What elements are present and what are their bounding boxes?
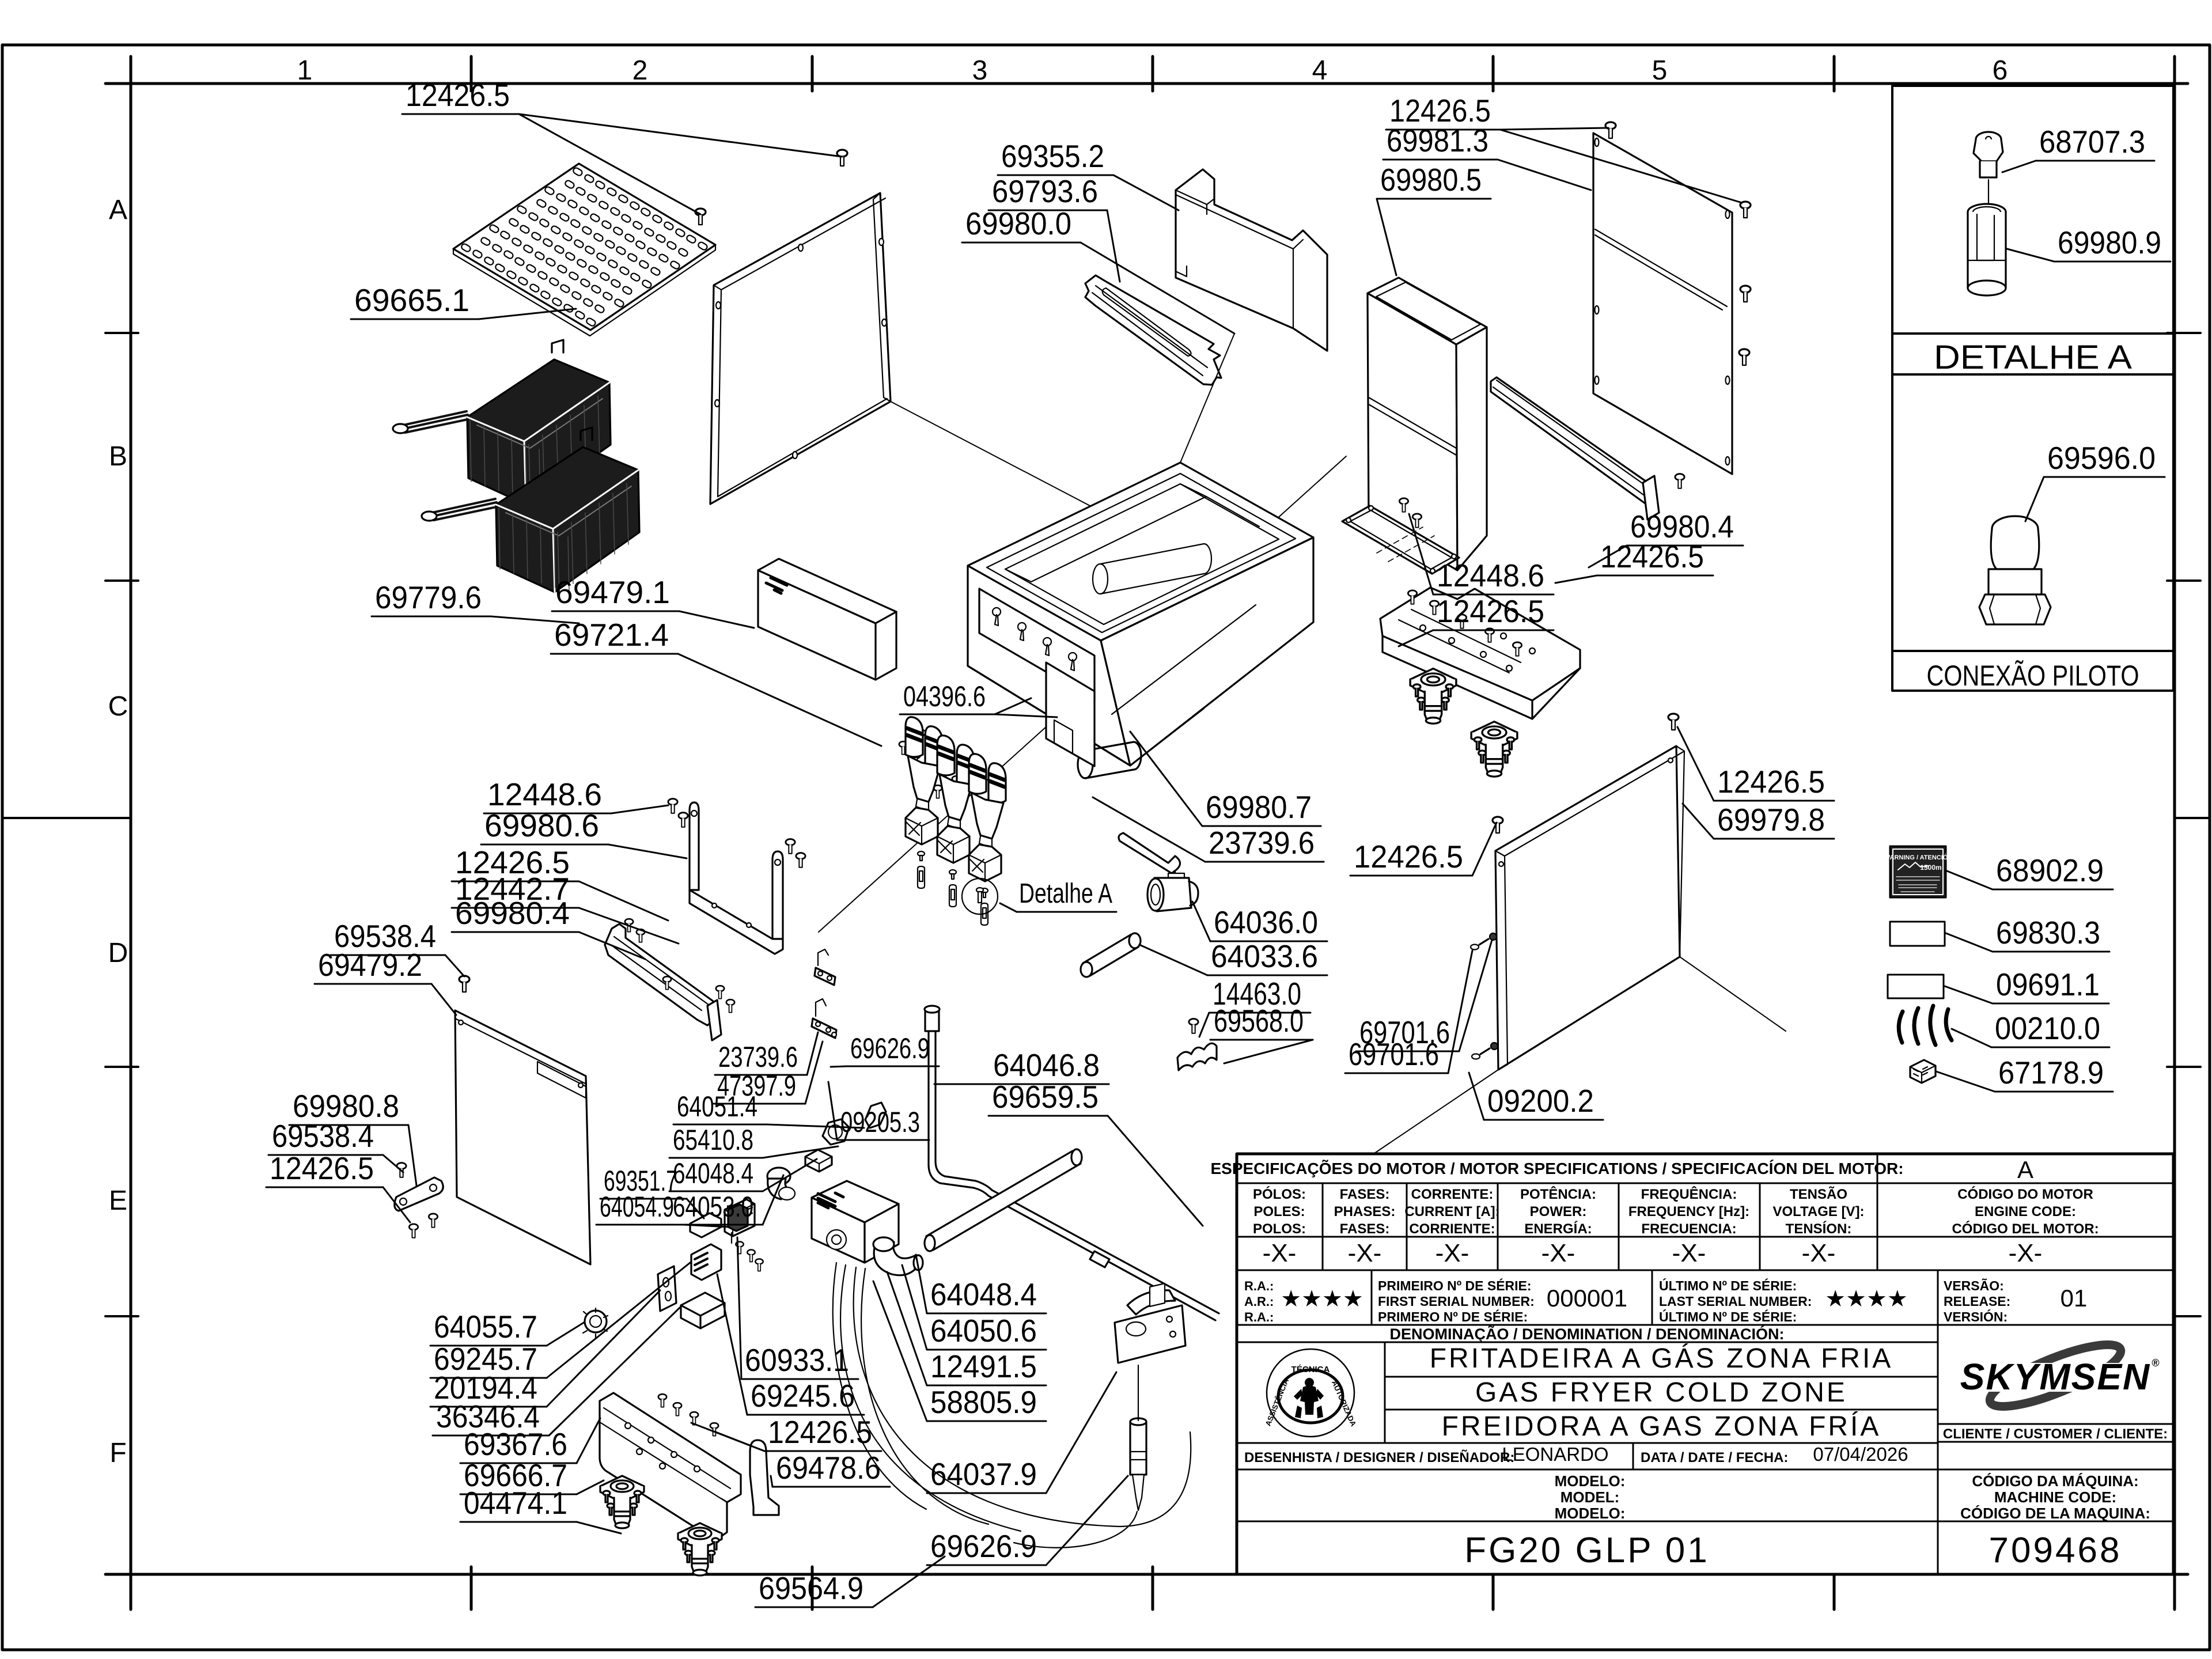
svg-text:64051.4: 64051.4 xyxy=(677,1090,757,1123)
svg-text:69980.0: 69980.0 xyxy=(965,206,1071,241)
svg-text:CURRENT [A]:: CURRENT [A]: xyxy=(1404,1204,1499,1219)
svg-text:69980.4: 69980.4 xyxy=(455,895,570,931)
svg-text:POLOS:: POLOS: xyxy=(1253,1221,1306,1237)
svg-text:R.A.:: R.A.: xyxy=(1244,1279,1274,1293)
svg-text:ESPECIFICAÇÕES DO MOTOR / MOTO: ESPECIFICAÇÕES DO MOTOR / MOTOR SPECIFIC… xyxy=(1210,1160,1903,1177)
svg-text:MACHINE CODE:: MACHINE CODE: xyxy=(1994,1488,2116,1506)
svg-text:-X-: -X- xyxy=(1348,1239,1382,1267)
svg-text:VOLTAGE [V]:: VOLTAGE [V]: xyxy=(1772,1204,1864,1219)
svg-text:69665.1: 69665.1 xyxy=(354,282,469,318)
svg-text:1500m: 1500m xyxy=(1920,863,1941,872)
svg-text:A: A xyxy=(109,195,127,225)
svg-text:65410.8: 65410.8 xyxy=(673,1124,753,1156)
svg-text:ÚLTIMO Nº DE SÉRIE:: ÚLTIMO Nº DE SÉRIE: xyxy=(1659,1278,1797,1293)
svg-text:MODELO:: MODELO: xyxy=(1555,1505,1626,1522)
svg-text:69626.9: 69626.9 xyxy=(850,1032,930,1065)
svg-text:69979.8: 69979.8 xyxy=(1717,802,1825,838)
svg-text:09200.2: 09200.2 xyxy=(1487,1083,1594,1119)
svg-text:69478.6: 69478.6 xyxy=(776,1450,881,1486)
svg-text:69564.9: 69564.9 xyxy=(759,1570,863,1606)
svg-text:POTÊNCIA:: POTÊNCIA: xyxy=(1520,1186,1596,1202)
svg-text:6: 6 xyxy=(1993,55,2008,86)
svg-text:MODEL:: MODEL: xyxy=(1560,1488,1620,1506)
svg-text:VERSIÓN:: VERSIÓN: xyxy=(1944,1309,2008,1324)
svg-text:69980.9: 69980.9 xyxy=(2058,225,2161,260)
svg-text:TÉCNICA: TÉCNICA xyxy=(1291,1365,1330,1374)
svg-text:64048.4: 64048.4 xyxy=(673,1157,753,1190)
svg-text:12426.5: 12426.5 xyxy=(406,77,510,113)
svg-text:CLIENTE / CUSTOMER / CLIENTE:: CLIENTE / CUSTOMER / CLIENTE: xyxy=(1943,1426,2168,1442)
svg-text:TENSÃO: TENSÃO xyxy=(1790,1186,1847,1202)
svg-text:CÓDIGO DA MÁQUINA:: CÓDIGO DA MÁQUINA: xyxy=(1972,1472,2138,1490)
svg-text:12426.5: 12426.5 xyxy=(1354,839,1463,874)
svg-text:RELEASE:: RELEASE: xyxy=(1944,1294,2010,1309)
svg-text:69793.6: 69793.6 xyxy=(992,173,1098,209)
svg-text:F: F xyxy=(109,1438,126,1468)
svg-text:2: 2 xyxy=(632,55,648,86)
svg-text:64054.9: 64054.9 xyxy=(600,1191,674,1223)
svg-text:FREQUÊNCIA:: FREQUÊNCIA: xyxy=(1641,1186,1737,1202)
svg-text:CONEXÃO PILOTO: CONEXÃO PILOTO xyxy=(1927,660,2139,692)
svg-text:LEONARDO: LEONARDO xyxy=(1502,1444,1608,1465)
svg-text:07/04/2026: 07/04/2026 xyxy=(1813,1444,1908,1465)
svg-text:64036.0: 64036.0 xyxy=(1214,904,1318,940)
svg-text:12426.5: 12426.5 xyxy=(768,1414,872,1450)
svg-text:VERSÃO:: VERSÃO: xyxy=(1944,1278,2004,1293)
svg-text:69355.2: 69355.2 xyxy=(1001,138,1104,174)
svg-text:CÓDIGO DE LA MAQUINA:: CÓDIGO DE LA MAQUINA: xyxy=(1960,1505,2150,1522)
svg-text:POWER:: POWER: xyxy=(1530,1204,1587,1219)
svg-text:68902.9: 68902.9 xyxy=(1996,853,2104,888)
svg-text:FIRST SERIAL NUMBER:: FIRST SERIAL NUMBER: xyxy=(1378,1294,1535,1309)
svg-text:LAST SERIAL NUMBER:: LAST SERIAL NUMBER: xyxy=(1659,1294,1812,1309)
svg-text:POLES:: POLES: xyxy=(1253,1204,1305,1219)
svg-text:12448.6: 12448.6 xyxy=(1437,558,1544,593)
svg-text:5: 5 xyxy=(1652,55,1668,86)
svg-text:12491.5: 12491.5 xyxy=(930,1349,1037,1384)
svg-text:69721.4: 69721.4 xyxy=(554,617,669,653)
svg-text:-X-: -X- xyxy=(2009,1239,2043,1267)
svg-text:-X-: -X- xyxy=(1435,1239,1469,1267)
svg-text:69626.9: 69626.9 xyxy=(930,1528,1037,1564)
svg-text:D: D xyxy=(108,938,128,968)
svg-text:00210.0: 00210.0 xyxy=(1995,1010,2100,1046)
svg-text:69367.6: 69367.6 xyxy=(464,1426,567,1462)
svg-text:69981.3: 69981.3 xyxy=(1387,123,1488,158)
svg-text:DATA / DATE / FECHA:: DATA / DATE / FECHA: xyxy=(1641,1450,1788,1465)
svg-text:DETALHE A: DETALHE A xyxy=(1934,339,2132,376)
svg-text:60933.1: 60933.1 xyxy=(745,1342,849,1378)
svg-text:WARNING / ATENCIÓN: WARNING / ATENCIÓN xyxy=(1884,854,1953,861)
svg-text:04474.1: 04474.1 xyxy=(464,1485,567,1521)
svg-text:R.A.:: R.A.: xyxy=(1244,1310,1274,1324)
svg-text:CÓDIGO DO MOTOR: CÓDIGO DO MOTOR xyxy=(1957,1186,2093,1202)
svg-text:-X-: -X- xyxy=(1802,1239,1836,1267)
svg-text:04396.6: 04396.6 xyxy=(903,680,986,713)
svg-text:69779.6: 69779.6 xyxy=(375,579,482,615)
svg-text:64055.7: 64055.7 xyxy=(434,1309,537,1344)
svg-text:FASES:: FASES: xyxy=(1340,1221,1390,1237)
svg-text:FG20 GLP 01: FG20 GLP 01 xyxy=(1464,1531,1709,1570)
svg-text:-X-: -X- xyxy=(1541,1239,1575,1267)
svg-text:69479.2: 69479.2 xyxy=(318,947,422,983)
svg-text:58805.9: 58805.9 xyxy=(930,1384,1037,1420)
svg-text:64037.9: 64037.9 xyxy=(930,1456,1037,1492)
svg-text:69596.0: 69596.0 xyxy=(2047,440,2156,476)
svg-text:DESENHISTA / DESIGNER / DISEÑA: DESENHISTA / DESIGNER / DISEÑADOR: xyxy=(1244,1449,1514,1465)
svg-text:B: B xyxy=(109,441,127,472)
svg-text:69245.6: 69245.6 xyxy=(751,1378,855,1414)
svg-text:12426.5: 12426.5 xyxy=(1437,593,1544,629)
svg-text:-X-: -X- xyxy=(1672,1239,1706,1267)
svg-text:A.R.:: A.R.: xyxy=(1244,1294,1274,1309)
svg-text:ENGINE CODE:: ENGINE CODE: xyxy=(1975,1204,2076,1219)
svg-text:709468: 709468 xyxy=(1989,1531,2122,1570)
svg-text:TENSÍON:: TENSÍON: xyxy=(1786,1221,1852,1237)
svg-text:12426.5: 12426.5 xyxy=(1600,539,1704,574)
svg-text:69659.5: 69659.5 xyxy=(992,1079,1099,1115)
svg-text:69479.1: 69479.1 xyxy=(555,574,670,610)
svg-text:E: E xyxy=(109,1185,127,1216)
svg-text:CÓDIGO DEL MOTOR:: CÓDIGO DEL MOTOR: xyxy=(1952,1221,2099,1237)
svg-text:PRIMEIRO Nº DE SÉRIE:: PRIMEIRO Nº DE SÉRIE: xyxy=(1378,1278,1532,1293)
svg-text:69701.6: 69701.6 xyxy=(1349,1036,1439,1072)
svg-text:09205.3: 09205.3 xyxy=(840,1106,920,1138)
svg-text:09691.1: 09691.1 xyxy=(1996,967,2100,1002)
svg-text:69538.4: 69538.4 xyxy=(272,1118,374,1154)
svg-text:CORRIENTE:: CORRIENTE: xyxy=(1409,1221,1495,1237)
svg-text:4: 4 xyxy=(1312,55,1328,86)
svg-text:12426.5: 12426.5 xyxy=(1717,764,1825,800)
svg-text:69980.6: 69980.6 xyxy=(484,808,599,843)
svg-text:64033.6: 64033.6 xyxy=(1211,938,1318,974)
svg-text:64053.0: 64053.0 xyxy=(673,1191,753,1223)
svg-text:23739.6: 23739.6 xyxy=(718,1041,798,1073)
svg-text:★★★★: ★★★★ xyxy=(1825,1286,1907,1312)
svg-text:CORRENTE:: CORRENTE: xyxy=(1411,1187,1494,1202)
svg-text:★★★★: ★★★★ xyxy=(1281,1286,1363,1312)
svg-text:69568.0: 69568.0 xyxy=(1214,1003,1304,1039)
svg-text:23739.6: 23739.6 xyxy=(1209,825,1315,861)
svg-text:ENERGÍA:: ENERGÍA: xyxy=(1524,1221,1592,1237)
svg-text:1: 1 xyxy=(297,55,313,86)
svg-text:69980.7: 69980.7 xyxy=(1206,789,1312,825)
svg-text:64048.4: 64048.4 xyxy=(930,1277,1037,1312)
svg-text:C: C xyxy=(108,691,128,722)
svg-text:68707.3: 68707.3 xyxy=(2039,124,2145,160)
svg-text:64050.6: 64050.6 xyxy=(930,1313,1037,1349)
svg-text:GAS FRYER COLD ZONE: GAS FRYER COLD ZONE xyxy=(1475,1377,1847,1408)
svg-text:12426.5: 12426.5 xyxy=(270,1150,374,1186)
svg-text:69980.5: 69980.5 xyxy=(1380,162,1482,198)
svg-text:PÓLOS:: PÓLOS: xyxy=(1253,1186,1306,1202)
svg-text:FREIDORA A GAS ZONA FRÍA: FREIDORA A GAS ZONA FRÍA xyxy=(1442,1411,1881,1442)
svg-text:FRITADEIRA A GÁS ZONA FRIA: FRITADEIRA A GÁS ZONA FRIA xyxy=(1430,1343,1893,1374)
svg-text:000001: 000001 xyxy=(1547,1285,1627,1312)
svg-text:Detalhe A: Detalhe A xyxy=(1019,878,1112,909)
svg-text:A: A xyxy=(2017,1156,2033,1183)
svg-text:PRIMERO Nº DE SÉRIE:: PRIMERO Nº DE SÉRIE: xyxy=(1378,1309,1528,1324)
svg-text:MODELO:: MODELO: xyxy=(1555,1472,1626,1490)
svg-text:®: ® xyxy=(2152,1357,2159,1369)
svg-text:12448.6: 12448.6 xyxy=(487,777,602,812)
svg-text:FREQUENCY [Hz]:: FREQUENCY [Hz]: xyxy=(1628,1204,1749,1219)
svg-text:DENOMINAÇÃO / DENOMINATION / D: DENOMINAÇÃO / DENOMINATION / DENOMINACIÓ… xyxy=(1390,1325,1785,1343)
svg-text:ÚLTIMO Nº DE SÉRIE:: ÚLTIMO Nº DE SÉRIE: xyxy=(1659,1309,1797,1324)
svg-text:FRECUENCIA:: FRECUENCIA: xyxy=(1641,1221,1736,1237)
svg-text:3: 3 xyxy=(972,55,988,86)
svg-text:67178.9: 67178.9 xyxy=(1998,1055,2104,1090)
svg-text:01: 01 xyxy=(2061,1285,2088,1312)
svg-text:69830.3: 69830.3 xyxy=(1996,915,2100,950)
svg-text:FASES:: FASES: xyxy=(1340,1187,1390,1202)
svg-text:PHASES:: PHASES: xyxy=(1334,1204,1396,1219)
svg-text:SKYMSEN: SKYMSEN xyxy=(1960,1356,2151,1397)
svg-text:-X-: -X- xyxy=(1263,1239,1297,1267)
svg-text:64046.8: 64046.8 xyxy=(993,1047,1100,1083)
